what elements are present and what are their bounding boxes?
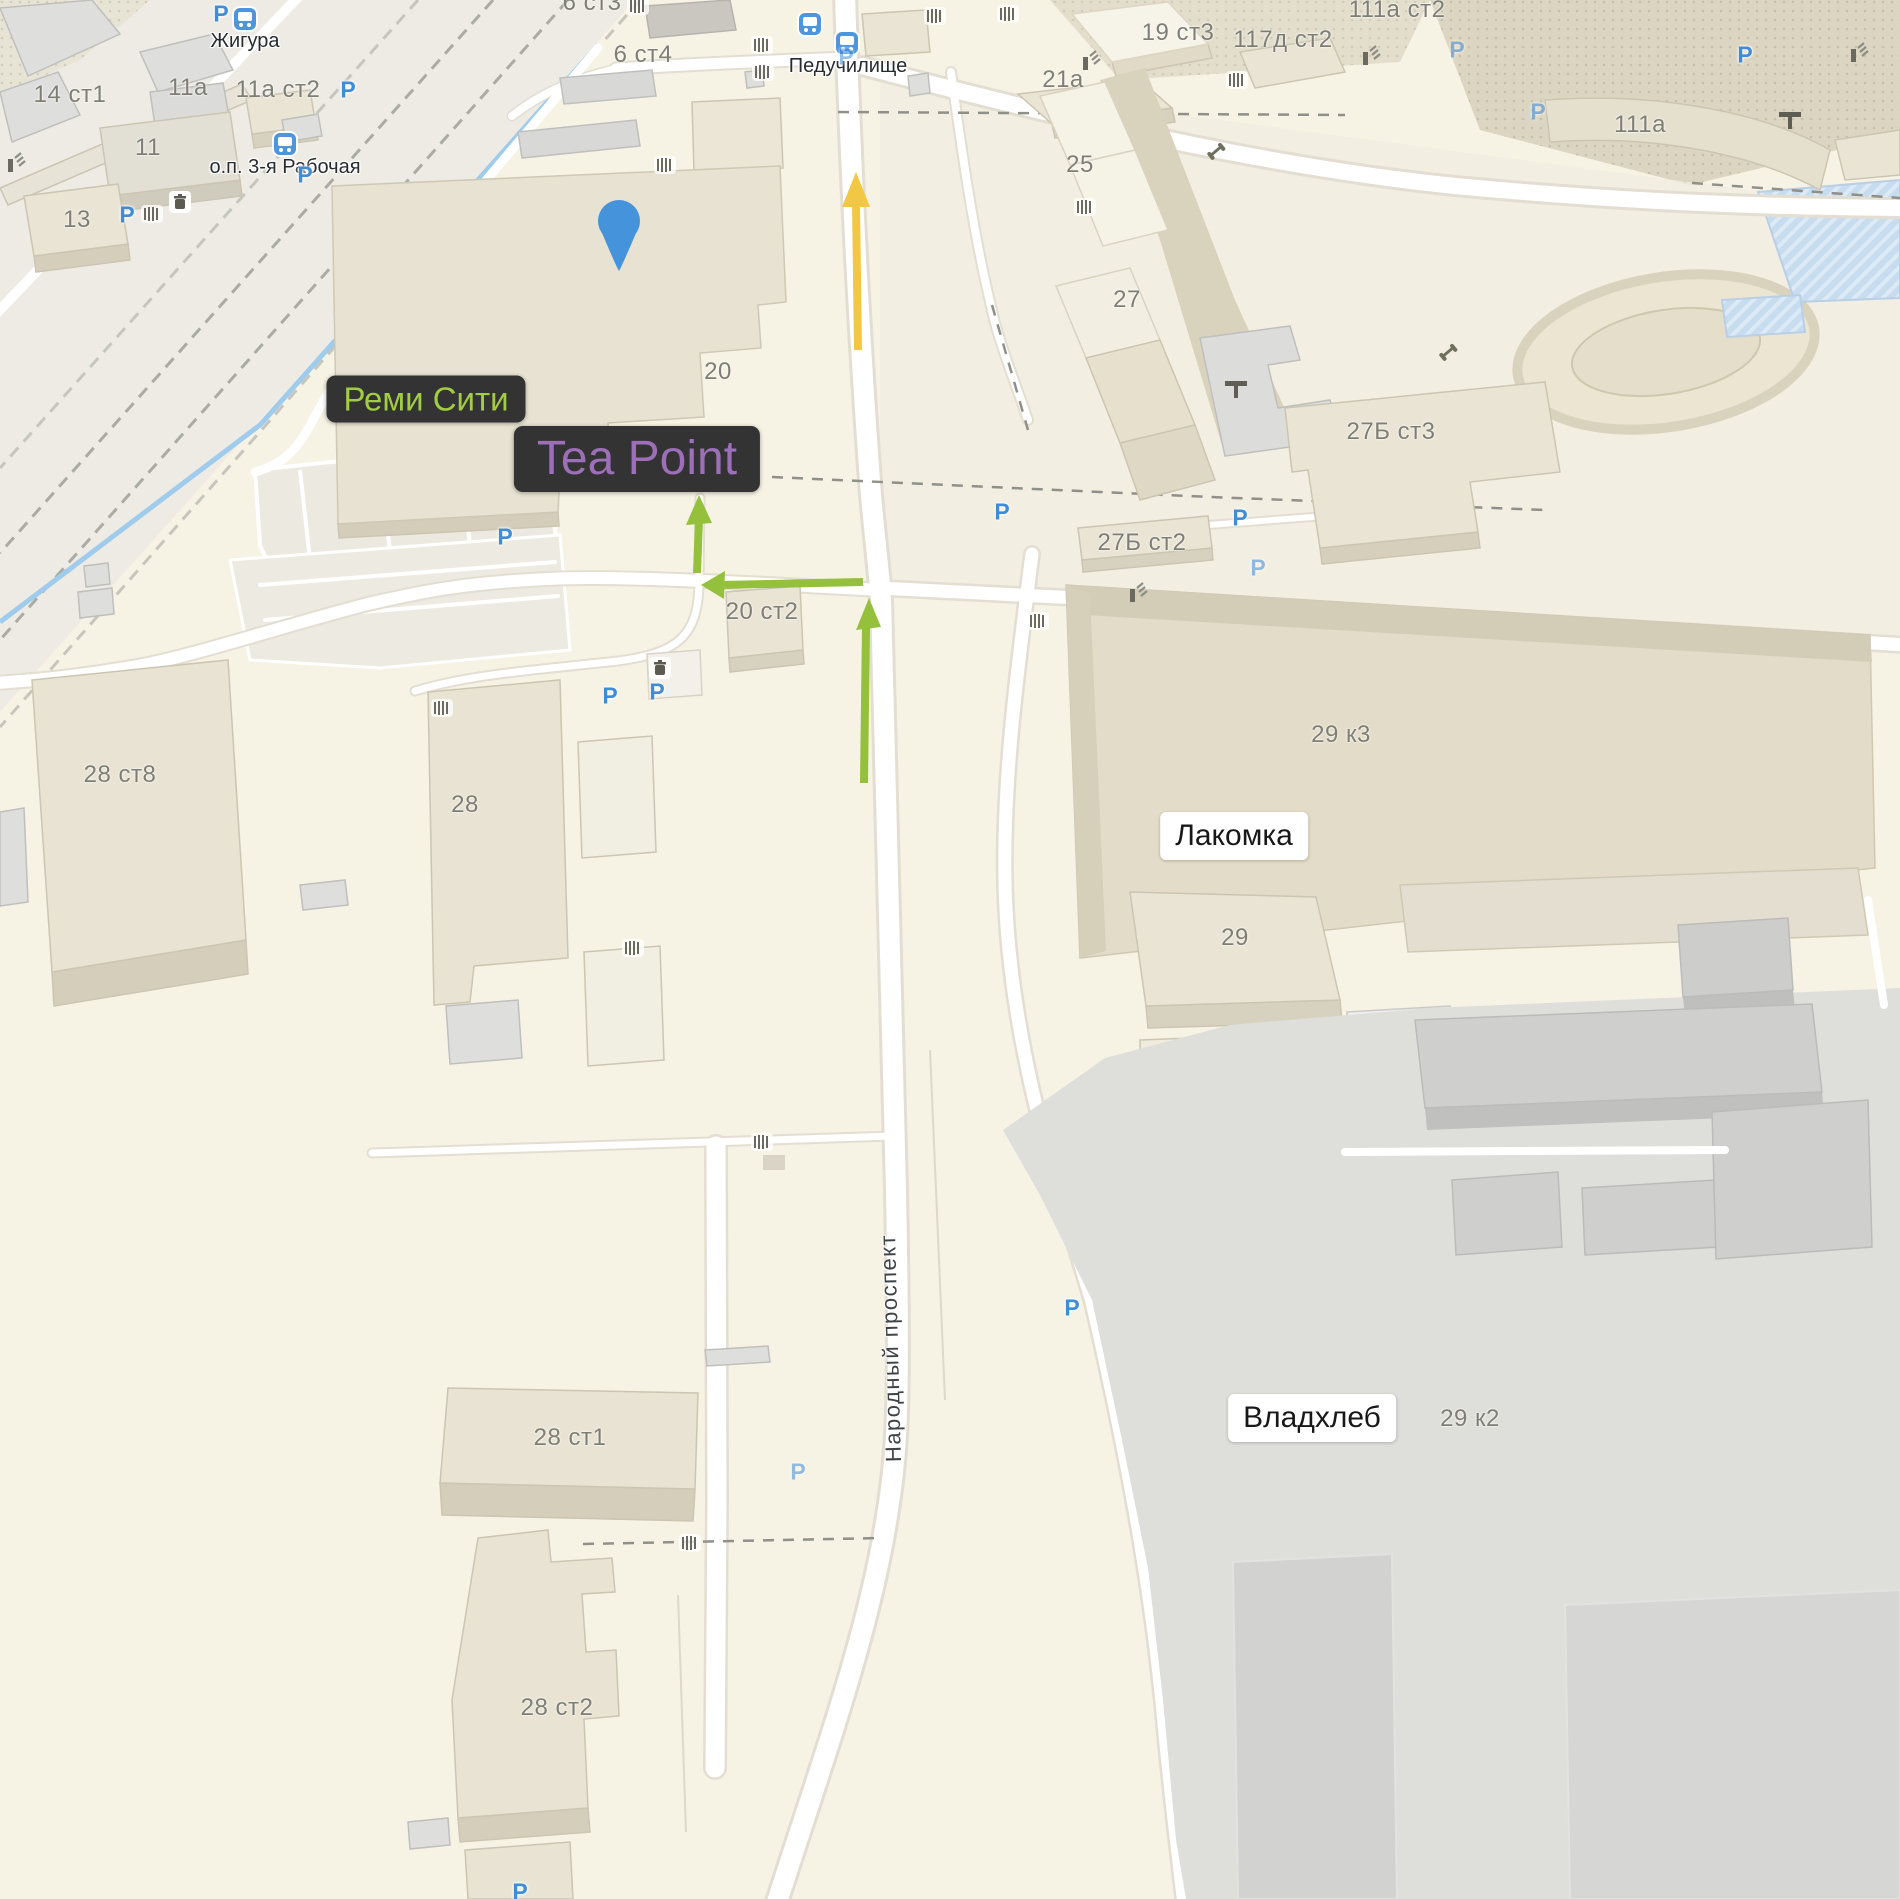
transit-stop-label[interactable]: Жигура	[211, 31, 280, 51]
parking-icon[interactable]: P	[1064, 1297, 1079, 1320]
building-label: 28	[451, 793, 479, 817]
building-label: 111а ст2	[1349, 0, 1446, 22]
building-label: 6 ст4	[614, 43, 673, 67]
building-label: 29	[1221, 926, 1249, 950]
building-label: 19 ст3	[1142, 21, 1215, 45]
parking-icon[interactable]: P	[213, 3, 228, 26]
building-label: 14 ст1	[34, 83, 107, 107]
parking-icon[interactable]: P	[838, 46, 853, 69]
building-label: 117д ст2	[1233, 28, 1332, 52]
building-label: 28 ст2	[521, 1696, 594, 1720]
building-label: 28 ст1	[534, 1426, 607, 1450]
building-label: 11а	[168, 76, 208, 100]
train-stop-icon[interactable]	[274, 133, 296, 155]
building-label: 27Б ст2	[1098, 531, 1187, 555]
building-label: 20	[704, 360, 732, 384]
building-label: 21а	[1042, 68, 1084, 92]
building-label: 29 к3	[1311, 723, 1371, 747]
building-label: 13	[63, 208, 91, 232]
parking-icon[interactable]: P	[649, 681, 664, 704]
parking-icon[interactable]: P	[297, 164, 312, 187]
parking-icon[interactable]: P	[1250, 557, 1265, 580]
bus-stop-icon[interactable]	[799, 13, 821, 35]
parking-icon[interactable]: P	[1232, 507, 1247, 530]
building-label: 6 ст3	[563, 0, 622, 15]
poi-vladkhleb[interactable]: Владхлеб	[1228, 1394, 1396, 1442]
poi-tea-point[interactable]: Tea Point	[514, 426, 760, 492]
tram-stop-icon[interactable]	[234, 8, 256, 30]
parking-icon[interactable]: P	[119, 204, 134, 227]
parking-icon[interactable]: P	[790, 1461, 805, 1484]
building-label: 27Б ст3	[1347, 420, 1436, 444]
parking-icon[interactable]: P	[497, 526, 512, 549]
map-canvas[interactable]: 14 ст1 11а 11а ст2 11 13 6 ст3 6 ст4 19 …	[0, 0, 1900, 1899]
transit-stop-label[interactable]: о.п. 3-я Рабочая	[209, 157, 360, 177]
building-label: 28 ст8	[84, 763, 157, 787]
parking-icon[interactable]: P	[1530, 101, 1545, 124]
building-label: 27	[1113, 288, 1141, 312]
poi-remi-city[interactable]: Реми Сити	[326, 376, 525, 423]
parking-icon[interactable]: P	[994, 501, 1009, 524]
labels-overlay: 14 ст1 11а 11а ст2 11 13 6 ст3 6 ст4 19 …	[0, 0, 1900, 1899]
parking-icon[interactable]: P	[1449, 39, 1464, 62]
parking-icon[interactable]: P	[602, 685, 617, 708]
parking-icon[interactable]: P	[512, 1881, 527, 1899]
poi-lakomka[interactable]: Лакомка	[1160, 812, 1308, 860]
building-label: 111а	[1614, 113, 1666, 137]
building-label: 25	[1066, 153, 1094, 177]
parking-icon[interactable]: P	[340, 79, 355, 102]
building-label: 20 ст2	[726, 600, 799, 624]
street-name: Народный проспект	[877, 1234, 905, 1463]
parking-icon[interactable]: P	[1737, 44, 1752, 67]
building-label: 11	[135, 136, 161, 160]
building-label: 29 к2	[1440, 1407, 1500, 1431]
building-label: 11а ст2	[236, 78, 321, 102]
